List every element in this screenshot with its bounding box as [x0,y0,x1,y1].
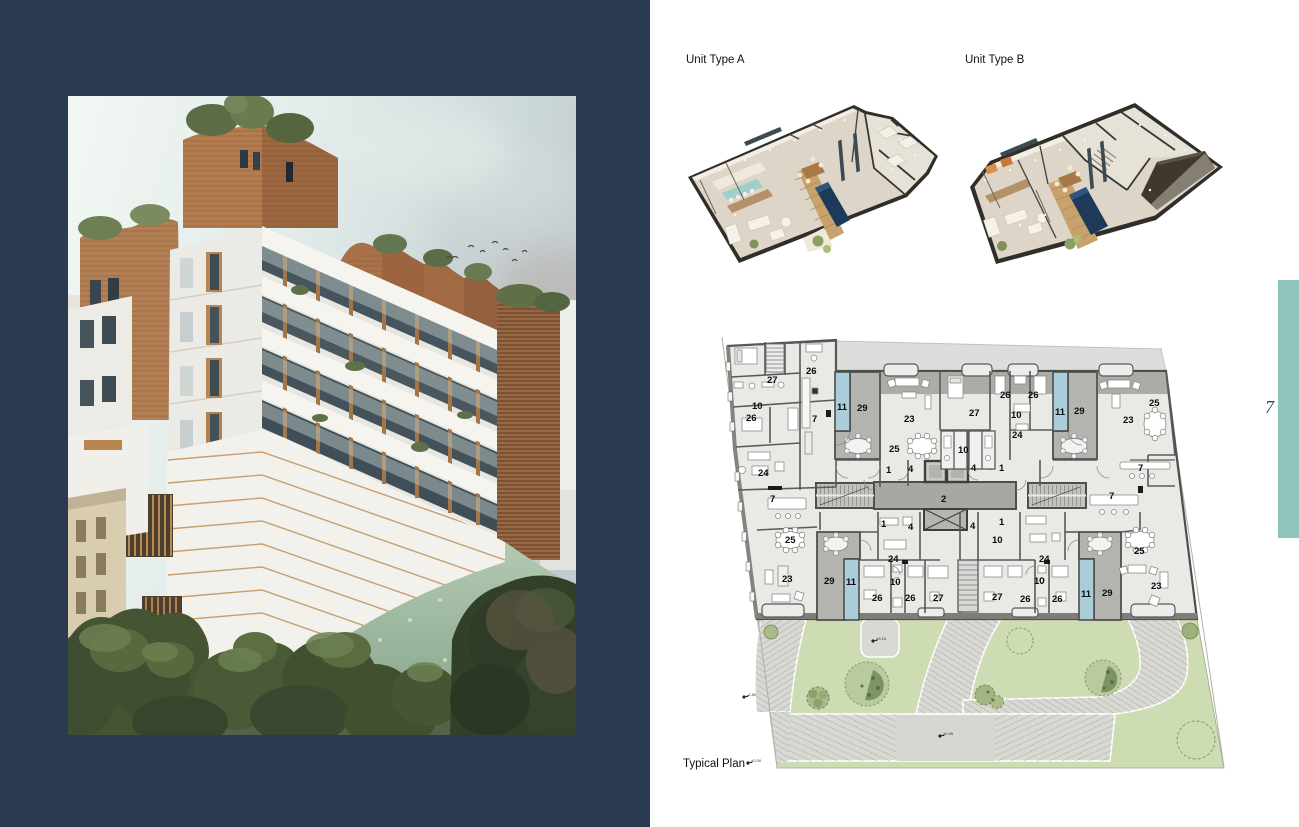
svg-text:29: 29 [1074,406,1085,417]
svg-text:11: 11 [837,402,848,413]
svg-text:26: 26 [1020,594,1031,605]
svg-text:26: 26 [806,366,817,377]
svg-text:27: 27 [992,592,1003,603]
svg-text:23: 23 [1123,415,1134,426]
svg-text:1: 1 [999,463,1005,474]
svg-text:23: 23 [1151,581,1162,592]
svg-text:4: 4 [908,464,914,475]
svg-text:23: 23 [782,574,793,585]
svg-text:23: 23 [904,414,915,425]
svg-text:25: 25 [785,535,796,546]
svg-text:26: 26 [905,593,916,604]
svg-text:11: 11 [846,577,857,588]
svg-text:4: 4 [908,522,914,533]
svg-text:29: 29 [1102,588,1113,599]
svg-text:24: 24 [1012,430,1023,441]
svg-text:7: 7 [1138,463,1143,474]
svg-text:29: 29 [824,576,835,587]
svg-text:7: 7 [1109,491,1114,502]
svg-text:4: 4 [971,463,977,474]
svg-text:10: 10 [1034,576,1045,587]
svg-text:+0.95: +0.95 [943,731,954,736]
svg-text:24: 24 [888,554,899,565]
svg-text:25: 25 [1149,398,1160,409]
svg-text:29: 29 [857,403,868,414]
svg-text:10: 10 [958,445,969,456]
svg-text:27: 27 [933,593,944,604]
svg-text:1: 1 [886,465,892,476]
svg-text:11: 11 [1055,407,1066,418]
svg-text:26: 26 [746,413,757,424]
svg-text:10: 10 [1011,410,1022,421]
svg-text:10: 10 [752,401,763,412]
svg-text:10: 10 [890,577,901,588]
svg-text:1: 1 [881,519,887,530]
svg-text:11: 11 [1081,589,1092,600]
svg-text:27: 27 [969,408,980,419]
svg-text:27: 27 [767,375,778,386]
svg-text:-1.80: -1.80 [747,692,757,697]
svg-text:+2.00: +2.00 [751,758,762,763]
svg-text:4: 4 [970,521,976,532]
svg-text:26: 26 [1000,390,1011,401]
svg-text:7: 7 [770,494,775,505]
svg-text:26: 26 [1028,390,1039,401]
svg-text:26: 26 [872,593,883,604]
svg-text:25: 25 [1134,546,1145,557]
svg-text:+5.15: +5.15 [876,636,887,641]
svg-text:7: 7 [812,414,817,425]
svg-text:10: 10 [992,535,1003,546]
svg-text:1: 1 [999,517,1005,528]
svg-text:26: 26 [1052,594,1063,605]
svg-text:2: 2 [941,494,946,505]
svg-text:25: 25 [889,444,900,455]
svg-text:24: 24 [758,468,769,479]
svg-text:24: 24 [1039,554,1050,565]
